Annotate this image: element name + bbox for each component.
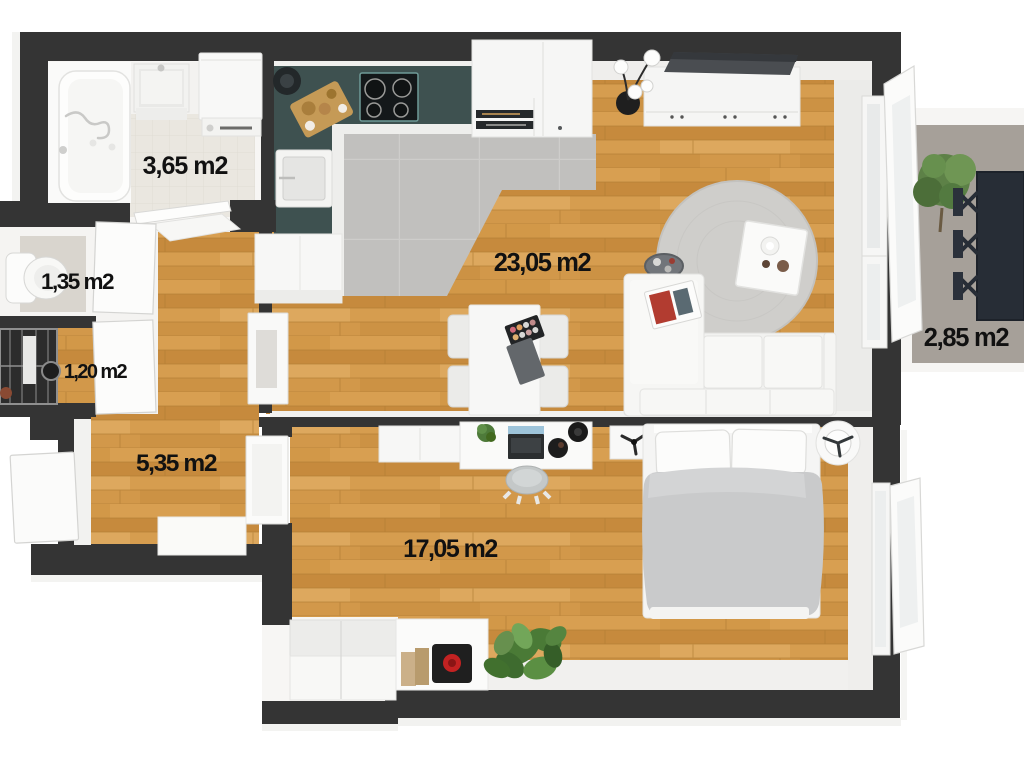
- svg-text:1,20 m2: 1,20 m2: [64, 361, 128, 383]
- svg-text:5,35 m2: 5,35 m2: [136, 450, 217, 477]
- svg-text:23,05 m2: 23,05 m2: [494, 249, 592, 277]
- svg-text:1,35 m2: 1,35 m2: [41, 269, 114, 294]
- svg-text:2,85 m2: 2,85 m2: [924, 324, 1010, 352]
- svg-text:17,05 m2: 17,05 m2: [403, 535, 497, 563]
- svg-text:3,65 m2: 3,65 m2: [143, 152, 228, 180]
